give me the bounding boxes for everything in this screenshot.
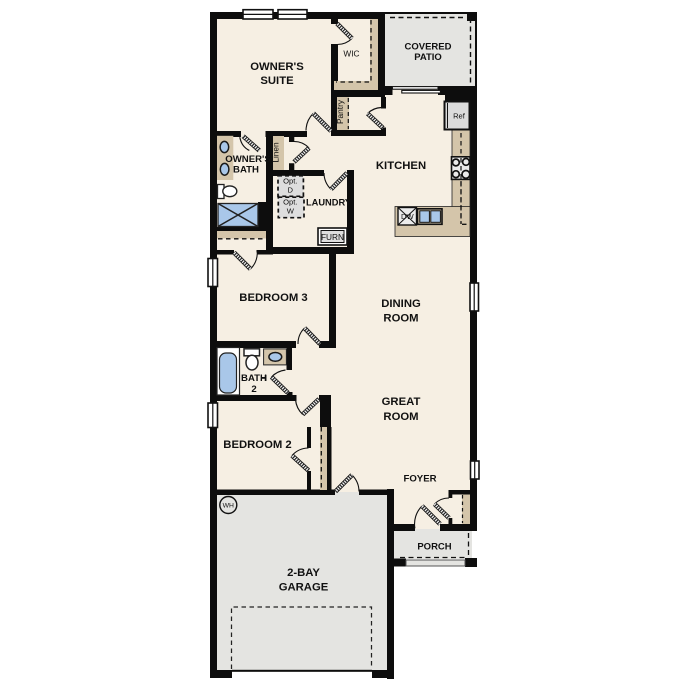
svg-text:SUITE: SUITE (260, 75, 294, 87)
svg-text:2: 2 (251, 384, 256, 395)
svg-text:OWNER'S: OWNER'S (250, 61, 304, 73)
svg-text:FURN: FURN (321, 232, 344, 242)
svg-text:BATH: BATH (233, 165, 259, 176)
svg-text:GARAGE: GARAGE (279, 582, 329, 594)
svg-text:2-BAY: 2-BAY (287, 567, 320, 579)
svg-text:DW: DW (401, 212, 414, 221)
svg-text:Ref: Ref (453, 112, 466, 121)
svg-text:OWNER'S: OWNER'S (225, 154, 271, 165)
svg-text:WIC: WIC (343, 49, 359, 59)
svg-text:LAUNDRY: LAUNDRY (306, 198, 352, 208)
svg-text:PATIO: PATIO (414, 52, 442, 63)
svg-text:W: W (287, 207, 295, 216)
svg-text:BEDROOM 3: BEDROOM 3 (239, 292, 307, 304)
svg-text:COVERED: COVERED (405, 42, 452, 53)
svg-text:Linen: Linen (271, 142, 281, 163)
svg-text:PORCH: PORCH (417, 542, 451, 553)
svg-text:GREAT: GREAT (382, 396, 421, 408)
svg-text:WH: WH (223, 503, 234, 510)
svg-text:Pantry: Pantry (335, 99, 345, 124)
svg-text:ROOM: ROOM (383, 411, 418, 423)
svg-text:BATH: BATH (241, 373, 267, 384)
svg-text:ROOM: ROOM (383, 313, 418, 325)
svg-text:DINING: DINING (381, 298, 421, 310)
svg-text:Opt.: Opt. (283, 198, 297, 207)
svg-text:FOYER: FOYER (403, 474, 436, 485)
svg-text:D: D (288, 186, 294, 195)
svg-text:KITCHEN: KITCHEN (376, 160, 426, 172)
svg-text:BEDROOM 2: BEDROOM 2 (223, 439, 291, 451)
svg-text:Opt.: Opt. (283, 177, 297, 186)
